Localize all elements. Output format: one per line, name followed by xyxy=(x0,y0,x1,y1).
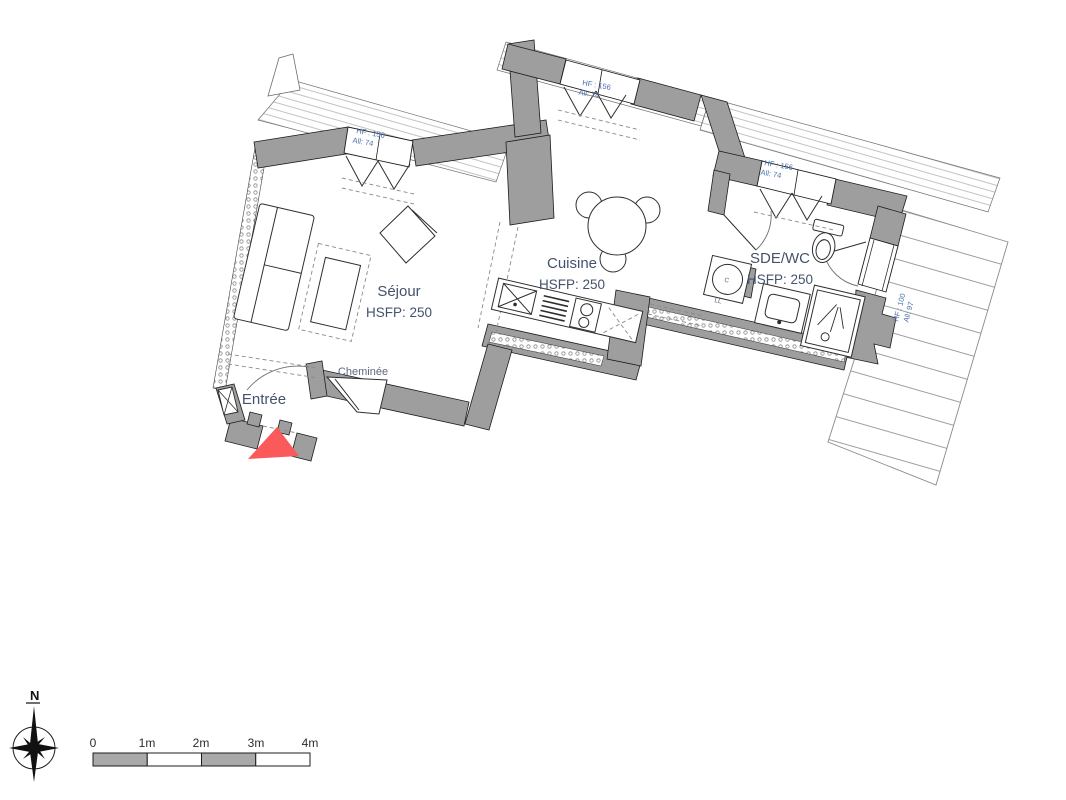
armchair-diamond xyxy=(380,206,435,263)
sde-door-arc xyxy=(756,211,771,250)
entry-door-arc xyxy=(247,366,309,390)
room-label-cuisine: Cuisine xyxy=(547,255,597,272)
wall-step-sejour-cuisine xyxy=(465,344,512,430)
wall-entree-door-stub xyxy=(306,361,327,399)
washer-label: LL xyxy=(714,297,723,306)
roof-corner-flag xyxy=(268,54,300,96)
scale-bar: 0 1m 2m 3m 4m xyxy=(90,736,319,766)
scale-tick-3: 3m xyxy=(248,736,265,750)
entree-dashed-1 xyxy=(228,354,318,368)
window-cuisine xyxy=(558,60,640,140)
room-hsfp-cuisine: HSFP: 250 xyxy=(539,277,605,292)
room-label-sejour: Séjour xyxy=(377,283,420,300)
scale-tick-1: 1m xyxy=(139,736,156,750)
beam-dashed-1 xyxy=(478,222,500,328)
floor-plan-canvas: C LL Séjour HSFP: 250 Cuisine HSFP: 250 xyxy=(0,0,1066,800)
room-hsfp-sde: HSFP: 250 xyxy=(747,272,813,287)
wall-sejour-facade-left xyxy=(254,127,352,168)
scale-tick-2: 2m xyxy=(193,736,210,750)
coffee-table xyxy=(311,257,361,329)
roof-areas xyxy=(258,42,1008,485)
room-label-entree: Entrée xyxy=(242,391,286,408)
wall-cuisine-sde-stub xyxy=(708,170,730,215)
room-label-sde: SDE/WC xyxy=(750,250,810,267)
compass-north-label: N xyxy=(30,688,39,703)
room-hsfp-sejour: HSFP: 250 xyxy=(366,305,432,320)
wall-notch-1 xyxy=(247,412,262,427)
wall-entree-bottom-right xyxy=(291,433,317,461)
scale-tick-4: 4m xyxy=(302,736,319,750)
sde-door-leaf xyxy=(724,215,756,250)
toilet xyxy=(806,219,844,266)
dining-table xyxy=(588,197,646,255)
floor-plan-page: C LL Séjour HSFP: 250 Cuisine HSFP: 250 xyxy=(0,0,1066,800)
compass-rose: N xyxy=(9,688,59,782)
cheminee-label: Cheminée xyxy=(338,366,388,378)
wall-pier-sejour-cuisine xyxy=(506,135,554,225)
scale-tick-0: 0 xyxy=(90,736,97,750)
